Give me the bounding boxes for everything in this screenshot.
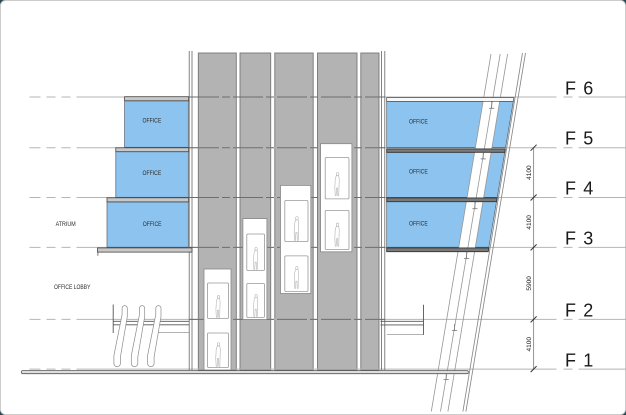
svg-text:4100: 4100 <box>526 215 533 230</box>
svg-text:4100: 4100 <box>526 165 533 180</box>
svg-text:F 1: F 1 <box>565 350 594 370</box>
svg-text:F 4: F 4 <box>565 179 594 199</box>
svg-text:ATRIUM: ATRIUM <box>56 221 76 228</box>
svg-text:4100: 4100 <box>526 337 533 352</box>
svg-text:F 6: F 6 <box>565 78 594 98</box>
svg-text:OFFICE LOBBY: OFFICE LOBBY <box>54 284 91 291</box>
svg-text:OFFICE: OFFICE <box>409 220 428 227</box>
svg-text:OFFICE: OFFICE <box>409 119 428 126</box>
svg-text:OFFICE: OFFICE <box>143 118 162 125</box>
svg-text:OFFICE: OFFICE <box>409 168 428 175</box>
svg-text:5900: 5900 <box>526 276 533 291</box>
svg-text:F 2: F 2 <box>565 300 594 320</box>
svg-text:F 5: F 5 <box>565 129 594 149</box>
svg-text:OFFICE: OFFICE <box>143 170 162 177</box>
svg-text:OFFICE: OFFICE <box>143 221 162 228</box>
svg-text:F 3: F 3 <box>565 229 594 249</box>
